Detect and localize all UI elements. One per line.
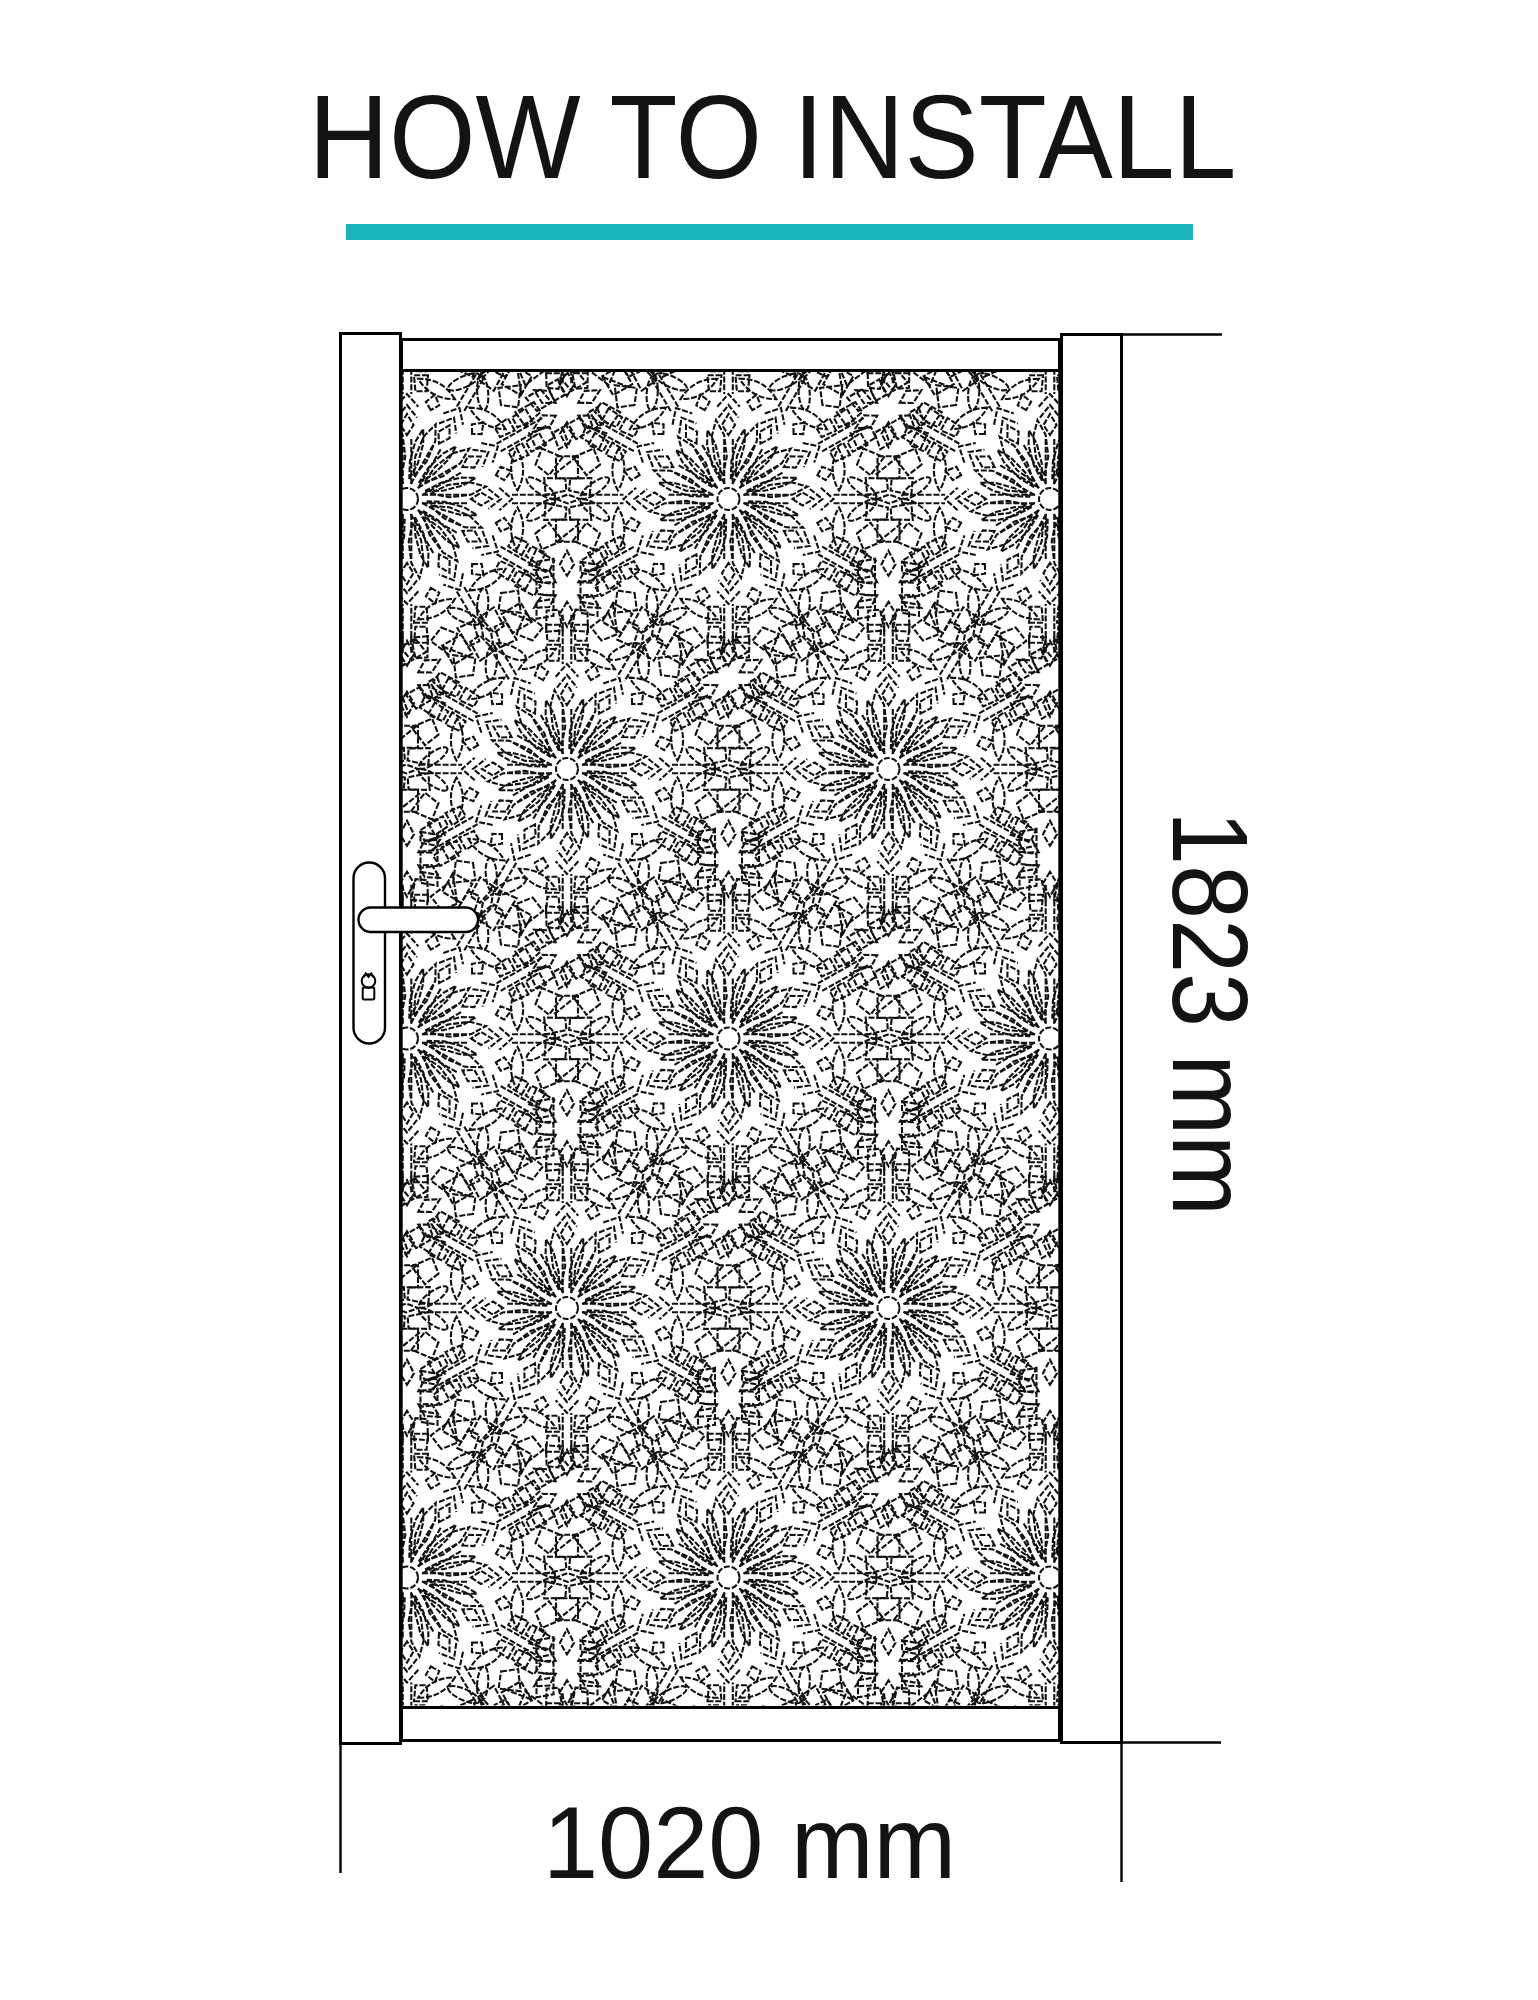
svg-text:1020 mm: 1020 mm — [543, 1786, 956, 1900]
svg-text:1823 mm: 1823 mm — [1150, 811, 1270, 1216]
svg-text:HOW TO INSTALL: HOW TO INSTALL — [309, 70, 1237, 203]
